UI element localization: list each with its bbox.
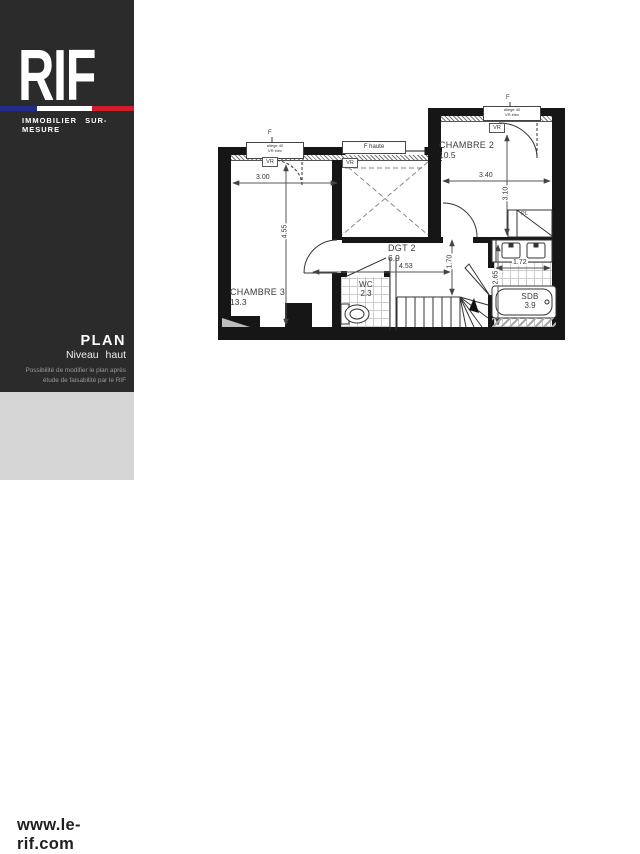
window-f-mark: F — [268, 130, 272, 136]
void-cross — [342, 162, 428, 235]
room-area-wc: 2.3 — [341, 289, 391, 298]
room-area-chambre2: 10.5 — [439, 150, 456, 160]
room-area-chambre3: 13.3 — [230, 297, 247, 307]
staircase — [397, 297, 488, 327]
dim-170: 1.70 — [446, 254, 453, 270]
room-label-dgt2: DGT 2 — [388, 243, 416, 253]
dim-300: 3.00 — [255, 174, 271, 181]
dim-265: 2.65 — [492, 270, 499, 286]
room-label-wc: WC — [341, 280, 391, 289]
tub-hatch — [492, 318, 556, 327]
f-haute-label-box: F haute — [342, 141, 406, 154]
room-area-dgt2: 6.9 — [388, 253, 400, 263]
dim-340: 3.40 — [478, 172, 494, 179]
website-link[interactable]: www.le-rif.com — [17, 816, 134, 854]
vr-shutter-tag: VR — [489, 123, 505, 133]
dim-310: 3.10 — [502, 186, 509, 202]
dim-172: 1.72 — [512, 259, 528, 266]
closet-label: PL — [521, 211, 528, 217]
vr-shutter-tag: VR — [262, 157, 278, 167]
plan-linework — [0, 0, 640, 480]
window2-label-box: allège 40 VR élec — [483, 106, 541, 121]
room-label-chambre3: CHAMBRE 3 — [230, 287, 285, 297]
dim-455: 4.55 — [281, 224, 288, 240]
room-label-sdb: SDB — [510, 292, 550, 301]
closet — [508, 210, 552, 237]
room-label-chambre2: CHAMBRE 2 — [439, 140, 494, 150]
dim-453: 4.53 — [398, 263, 414, 270]
window-f-mark: F — [506, 95, 510, 101]
room-area-sdb: 3.9 — [510, 301, 550, 310]
vr-shutter-tag: VR — [342, 158, 358, 168]
